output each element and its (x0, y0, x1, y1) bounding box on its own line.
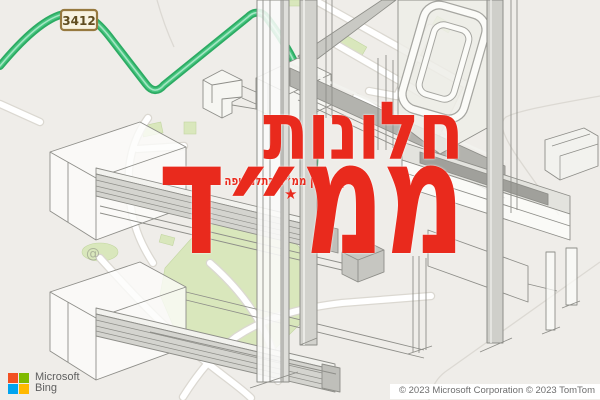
ms-square-green (19, 373, 29, 383)
bing-label: Bing (35, 383, 80, 394)
map-attribution: © 2023 Microsoft Corporation © 2023 TomT… (390, 384, 600, 399)
map-canvas[interactable]: 3412 @ (0, 0, 600, 400)
microsoft-logo-icon (8, 373, 29, 394)
headline-mamad: ממ״ד (158, 120, 463, 278)
bing-logo[interactable]: Microsoft Bing (8, 372, 80, 394)
svg-text:3412: 3412 (62, 14, 95, 28)
route-shield: 3412 (61, 10, 97, 30)
star-icon: ★ (284, 187, 297, 202)
ms-square-blue (8, 384, 18, 394)
watermark-glyph: @ (86, 246, 100, 262)
ms-square-yellow (19, 384, 29, 394)
ms-square-red (8, 373, 18, 383)
